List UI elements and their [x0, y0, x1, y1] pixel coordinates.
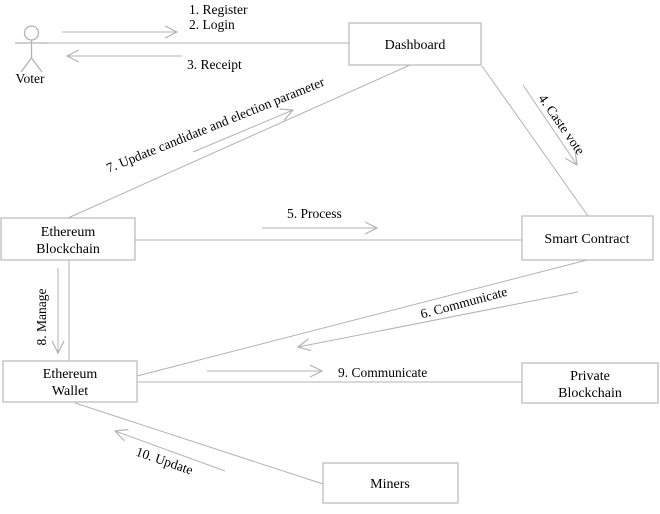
node-dashboard-label: Dashboard	[385, 38, 446, 53]
voter-actor-icon	[15, 26, 48, 72]
voter-leg-right	[32, 58, 43, 72]
node-ethereum-blockchain-label2: Blockchain	[36, 242, 100, 257]
arrow-communicate-6	[298, 292, 578, 347]
message-label-receipt: 3. Receipt	[187, 57, 242, 72]
node-ethereum-wallet-label2: Wallet	[52, 384, 88, 399]
message-label-register: 1. Register	[189, 2, 248, 17]
connector-ethwallet-miners	[75, 403, 323, 484]
message-label-process: 5. Process	[287, 206, 342, 221]
connector-smartcontract-ethwallet	[137, 260, 587, 376]
node-ethereum-wallet-label1: Ethereum	[43, 367, 98, 382]
node-private-blockchain: Private Blockchain	[522, 363, 658, 403]
node-miners-label: Miners	[370, 477, 410, 492]
node-private-blockchain-label1: Private	[570, 369, 610, 384]
node-smart-contract: Smart Contract	[522, 216, 653, 260]
node-private-blockchain-label2: Blockchain	[558, 386, 622, 401]
node-dashboard: Dashboard	[349, 23, 481, 65]
voting-system-diagram: Voter 1. Register 2. Login 3. Receipt 4.…	[0, 0, 660, 509]
message-label-update-candidate: 7. Update candidate and election paramet…	[104, 74, 327, 176]
message-label-login: 2. Login	[189, 17, 235, 32]
node-ethereum-blockchain: Ethereum Blockchain	[1, 218, 135, 260]
node-smart-contract-label: Smart Contract	[544, 232, 629, 247]
voter-leg-left	[21, 58, 32, 72]
message-label-communicate-6: 6. Communicate	[419, 284, 509, 322]
voter-head	[25, 26, 39, 40]
node-miners: Miners	[323, 463, 458, 503]
message-label-caste-vote: 4. Caste vote	[535, 91, 588, 157]
diagram-canvas: Voter 1. Register 2. Login 3. Receipt 4.…	[0, 0, 660, 509]
voter-label: Voter	[16, 71, 46, 86]
node-ethereum-wallet: Ethereum Wallet	[3, 361, 137, 402]
message-label-manage: 8. Manage	[34, 289, 49, 346]
connector-ethblockchain-dashboard	[68, 65, 410, 218]
node-ethereum-blockchain-label1: Ethereum	[41, 225, 96, 240]
message-label-communicate-9: 9. Communicate	[338, 365, 427, 380]
